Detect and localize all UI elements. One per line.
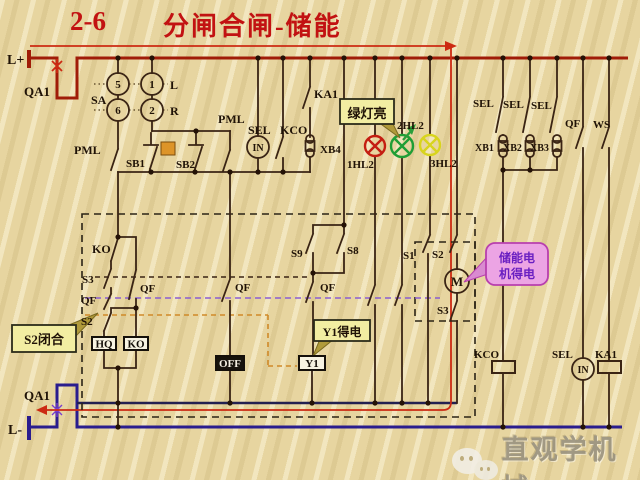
- label-sa-2: 2: [149, 105, 155, 117]
- ka1-coil-icon: [598, 361, 621, 373]
- lamp-red-icon: [365, 136, 385, 156]
- label-pml-left: PML: [74, 143, 101, 157]
- y1-box-label: Y1: [305, 358, 318, 370]
- label-s3-motor: S3: [437, 305, 449, 317]
- label-s9: S9: [291, 248, 303, 260]
- label-qf-parallel: QF: [140, 283, 156, 295]
- label-sel-r2: SEL: [503, 99, 524, 111]
- wire-qf-parallel: [118, 237, 136, 337]
- junction-dot: [580, 55, 585, 60]
- xb4-connector-icon: [306, 135, 315, 157]
- label-qf-off: QF: [235, 282, 251, 294]
- xb3-connector-icon: [553, 135, 562, 157]
- label-callout-s2-closed: S2闭合: [24, 332, 65, 347]
- watermark: 直观学机械: [452, 428, 640, 480]
- page-title: 分闸合闸-储能: [163, 6, 342, 43]
- off-box-label: OFF: [219, 358, 241, 370]
- label-hl2-2: 2HL2: [397, 120, 424, 132]
- label-ka1-top: KA1: [314, 87, 338, 101]
- junction-dot: [500, 55, 505, 60]
- junction-dot: [148, 169, 153, 174]
- wire-left-chain: [104, 172, 136, 427]
- label-sel-r1: SEL: [473, 98, 494, 110]
- label-xb3: XB3: [530, 143, 549, 154]
- label-s2-motor: S2: [432, 249, 444, 261]
- junction-dot: [149, 55, 154, 60]
- label-sa-5: 5: [115, 79, 121, 91]
- label-kco-bottom: KCO: [474, 349, 500, 361]
- label-s1: S1: [403, 250, 415, 262]
- motor-callout-tail: [464, 256, 488, 282]
- junction-dot: [255, 55, 260, 60]
- label-contact-l: L: [170, 78, 178, 92]
- junction-dot: [399, 400, 404, 405]
- label-ko-contact: KO: [92, 242, 111, 256]
- junction-dot: [115, 55, 120, 60]
- page-number: 2-6: [70, 6, 106, 37]
- label-qa1-bottom: QA1: [24, 388, 50, 403]
- junction-dot: [193, 128, 198, 133]
- junction-dot: [372, 55, 377, 60]
- junction-dot: [227, 169, 232, 174]
- junction-dot: [115, 234, 120, 239]
- label-pml-mid: PML: [218, 112, 245, 126]
- label-l-minus: L-: [8, 423, 22, 438]
- schematic-canvas: HQKOOFFY1 L+QA1SA5162LRPMLSB1SB2PMLSELKC…: [0, 0, 640, 480]
- label-m-motor: M: [451, 274, 463, 289]
- watermark-text: 直观学机械: [502, 428, 640, 480]
- lamp-yellow-icon: [420, 135, 440, 155]
- label-qf-left: QF: [81, 295, 97, 307]
- wire-lamp2-branch: [395, 58, 402, 403]
- dashed-linkages: [82, 214, 475, 417]
- label-sa-6: 6: [115, 105, 121, 117]
- label-s2-left: S2: [81, 316, 93, 328]
- junction-dot: [115, 424, 120, 429]
- junction-dot: [115, 400, 120, 405]
- label-ws: WS: [593, 119, 610, 131]
- label-qf-top-right: QF: [565, 118, 581, 130]
- junction-dot: [454, 55, 459, 60]
- label-sel-bottom: SEL: [552, 349, 573, 361]
- kco-coil-icon: [492, 361, 515, 373]
- label-ka1-bottom: KA1: [595, 349, 617, 361]
- label-sel-r3: SEL: [531, 100, 552, 112]
- junction-dot: [255, 169, 260, 174]
- slide-canvas: 2-6 分闸合闸-储能: [0, 0, 640, 480]
- wire-lamp3-s1-branch: [423, 58, 430, 403]
- hq-box-label: HQ: [95, 339, 113, 351]
- label-callout-y1-power: Y1得电: [323, 324, 362, 339]
- label-qa1-top: QA1: [24, 84, 50, 99]
- watermark-logo-icon: [452, 446, 502, 480]
- label-kco-top: KCO: [280, 123, 307, 137]
- label-callout-motor-power-2: 机得电: [499, 266, 535, 281]
- junction-dot: [399, 55, 404, 60]
- junction-dot: [341, 222, 346, 227]
- label-l-plus: L+: [7, 53, 24, 68]
- label-sa: SA: [91, 93, 107, 107]
- label-sa-1: 1: [149, 79, 155, 91]
- junction-dot: [115, 365, 120, 370]
- label-xb1: XB1: [475, 143, 494, 154]
- arrow-left-icon: [36, 405, 47, 415]
- junction-dot: [527, 55, 532, 60]
- label-callout-motor-power-1: 储能电: [499, 250, 535, 265]
- wire-ws-ka1-branch: [602, 58, 609, 427]
- junction-dot: [310, 270, 315, 275]
- label-sb1: SB1: [126, 158, 145, 170]
- label-contact-r: R: [170, 104, 179, 118]
- label-qf-y1: QF: [320, 282, 336, 294]
- junction-dot: [280, 169, 285, 174]
- label-xb4: XB4: [320, 144, 341, 156]
- junction-dot: [554, 55, 559, 60]
- junction-dot: [307, 55, 312, 60]
- qa1-contact-mark-icon: [52, 59, 62, 73]
- label-in-bottom: IN: [577, 365, 589, 376]
- label-sel-top: SEL: [248, 123, 271, 137]
- junction-dot: [227, 400, 232, 405]
- wire-kco-contact-branch: [276, 58, 283, 172]
- label-hl2-3: 3HL2: [430, 158, 457, 170]
- label-sb2: SB2: [176, 159, 195, 171]
- label-boxes: HQKOOFFY1: [92, 337, 325, 370]
- label-callout-green-light: 绿灯亮: [347, 106, 386, 121]
- label-xb2: XB2: [503, 143, 522, 154]
- orange-block-icon: [161, 142, 175, 155]
- junction-dot: [425, 400, 430, 405]
- junction-dot: [309, 400, 314, 405]
- junction-dot: [606, 55, 611, 60]
- label-in-top: IN: [252, 143, 264, 154]
- wire-s9-s8-y1-branch: [306, 58, 344, 403]
- junction-dot: [527, 167, 532, 172]
- ko-box-label: KO: [127, 339, 145, 351]
- title-bar: 2-6 分闸合闸-储能: [0, 4, 640, 40]
- junction-dot: [280, 55, 285, 60]
- label-s3-left: S3: [82, 274, 94, 286]
- junction-dot: [427, 55, 432, 60]
- label-s8: S8: [347, 245, 359, 257]
- junction-dot: [341, 55, 346, 60]
- lamp-green-icon: [391, 135, 413, 157]
- wire-sb1-button: [144, 133, 158, 172]
- junction-dot: [133, 305, 138, 310]
- label-hl2-1: 1HL2: [347, 159, 374, 171]
- junction-dot: [500, 167, 505, 172]
- junction-dot: [372, 400, 377, 405]
